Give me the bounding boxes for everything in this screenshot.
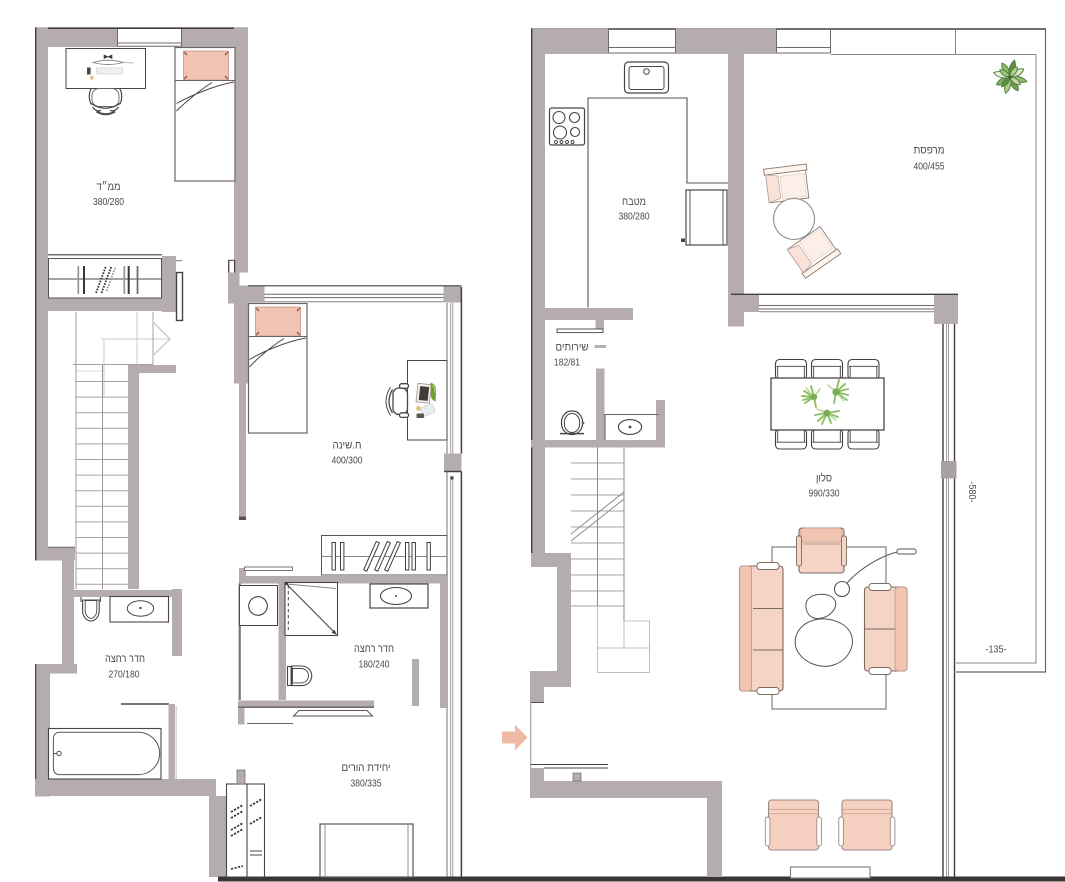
svg-text:שירותים: שירותים	[556, 342, 589, 354]
svg-text:400/455: 400/455	[914, 162, 945, 173]
svg-text:מרפסת: מרפסת	[914, 145, 945, 157]
svg-text:סלון: סלון	[816, 472, 832, 485]
svg-text:ח.שינה: ח.שינה	[333, 440, 362, 452]
svg-text:חדר רחצה: חדר רחצה	[354, 643, 394, 655]
svg-text:מטבח: מטבח	[622, 196, 646, 208]
svg-text:-580-: -580-	[966, 482, 977, 503]
svg-text:270/180: 270/180	[109, 670, 140, 681]
svg-text:180/240: 180/240	[359, 660, 390, 671]
svg-text:-135-: -135-	[986, 645, 1007, 656]
svg-text:380/280: 380/280	[619, 212, 650, 223]
svg-text:380/280: 380/280	[93, 197, 124, 208]
svg-text:182/81: 182/81	[554, 358, 580, 369]
svg-text:990/330: 990/330	[809, 489, 840, 500]
svg-text:חדר רחצה: חדר רחצה	[105, 653, 145, 665]
svg-text:400/300: 400/300	[332, 456, 363, 467]
svg-text:ממ״ד: ממ״ד	[97, 180, 121, 193]
svg-text:380/335: 380/335	[351, 779, 382, 790]
svg-text:יחידת הורים: יחידת הורים	[342, 762, 391, 774]
